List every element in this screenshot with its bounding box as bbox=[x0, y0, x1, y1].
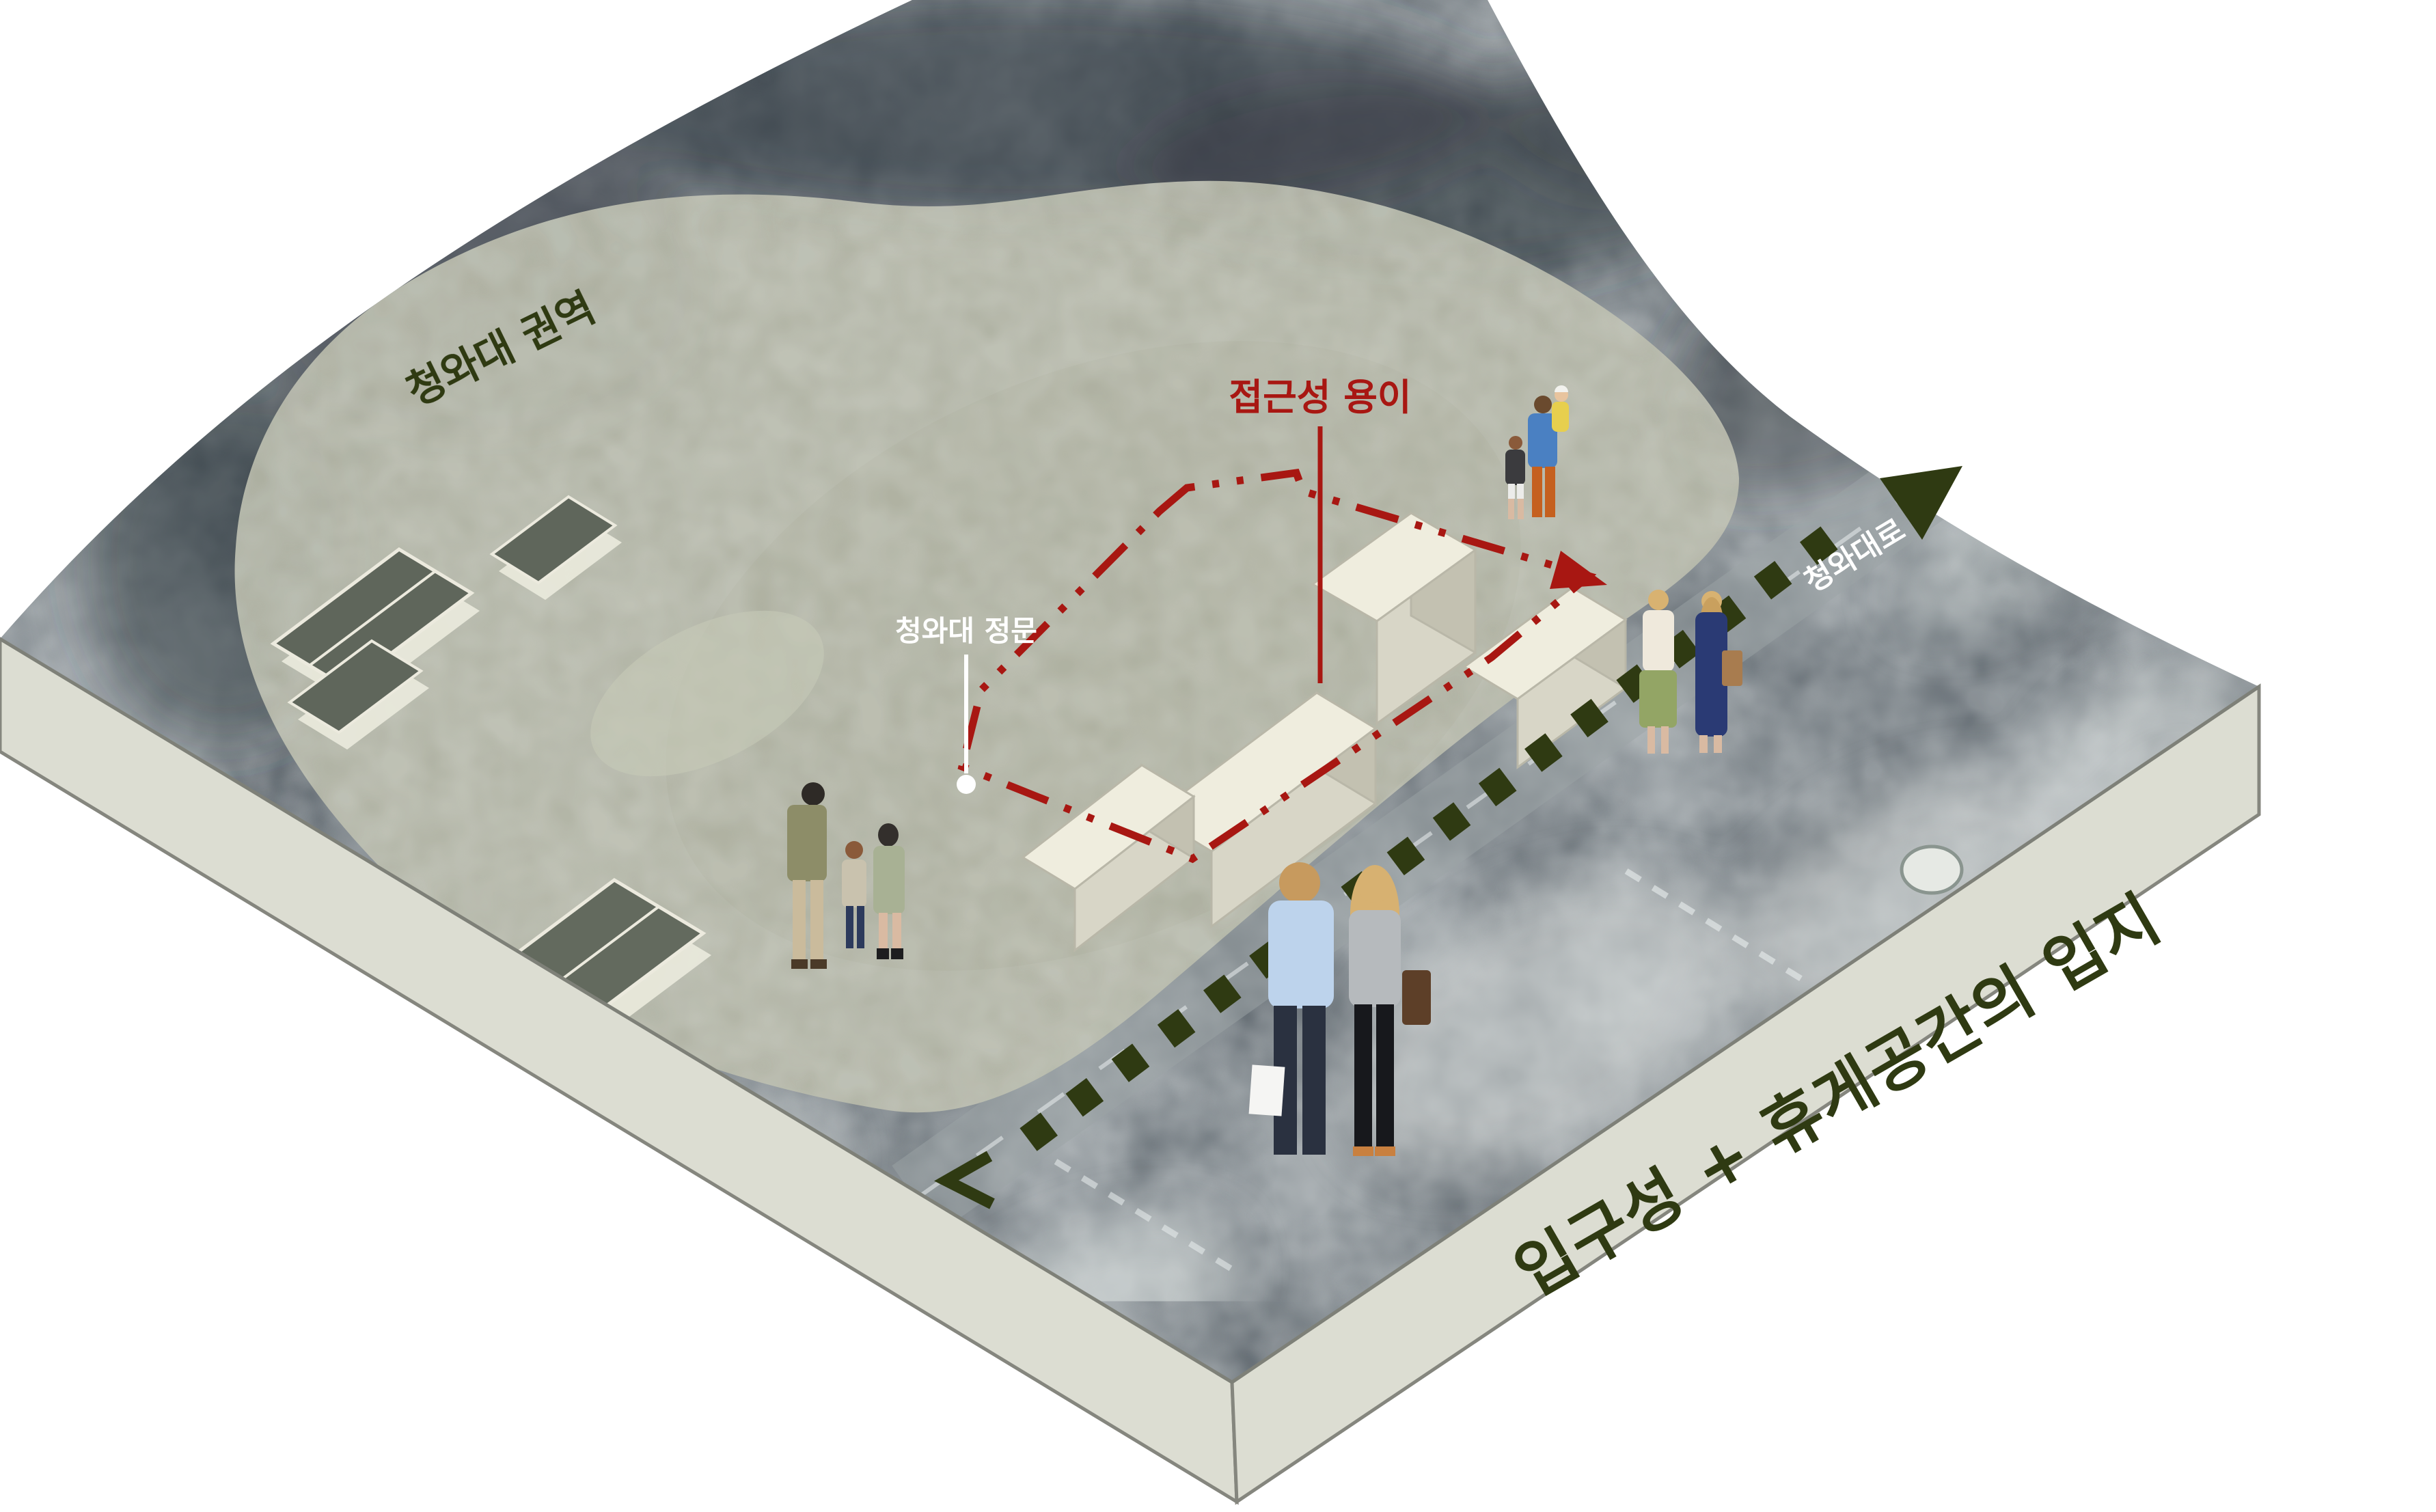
aerial-map bbox=[0, 0, 2436, 1512]
site-analysis-diagram: 청와대 권역 접근성 용이 청와대 정문 청와대로 입구성 + 휴게공간의 입지 bbox=[0, 0, 2436, 1512]
diagram-canvas: 청와대 권역 접근성 용이 청와대 정문 청와대로 입구성 + 휴게공간의 입지 bbox=[0, 0, 2436, 1512]
accessibility-label: 접근성 용이 bbox=[1229, 376, 1411, 419]
gate-label: 청와대 정문 bbox=[895, 614, 1037, 648]
gate-marker-dot bbox=[957, 775, 976, 794]
pond bbox=[1902, 847, 1962, 893]
